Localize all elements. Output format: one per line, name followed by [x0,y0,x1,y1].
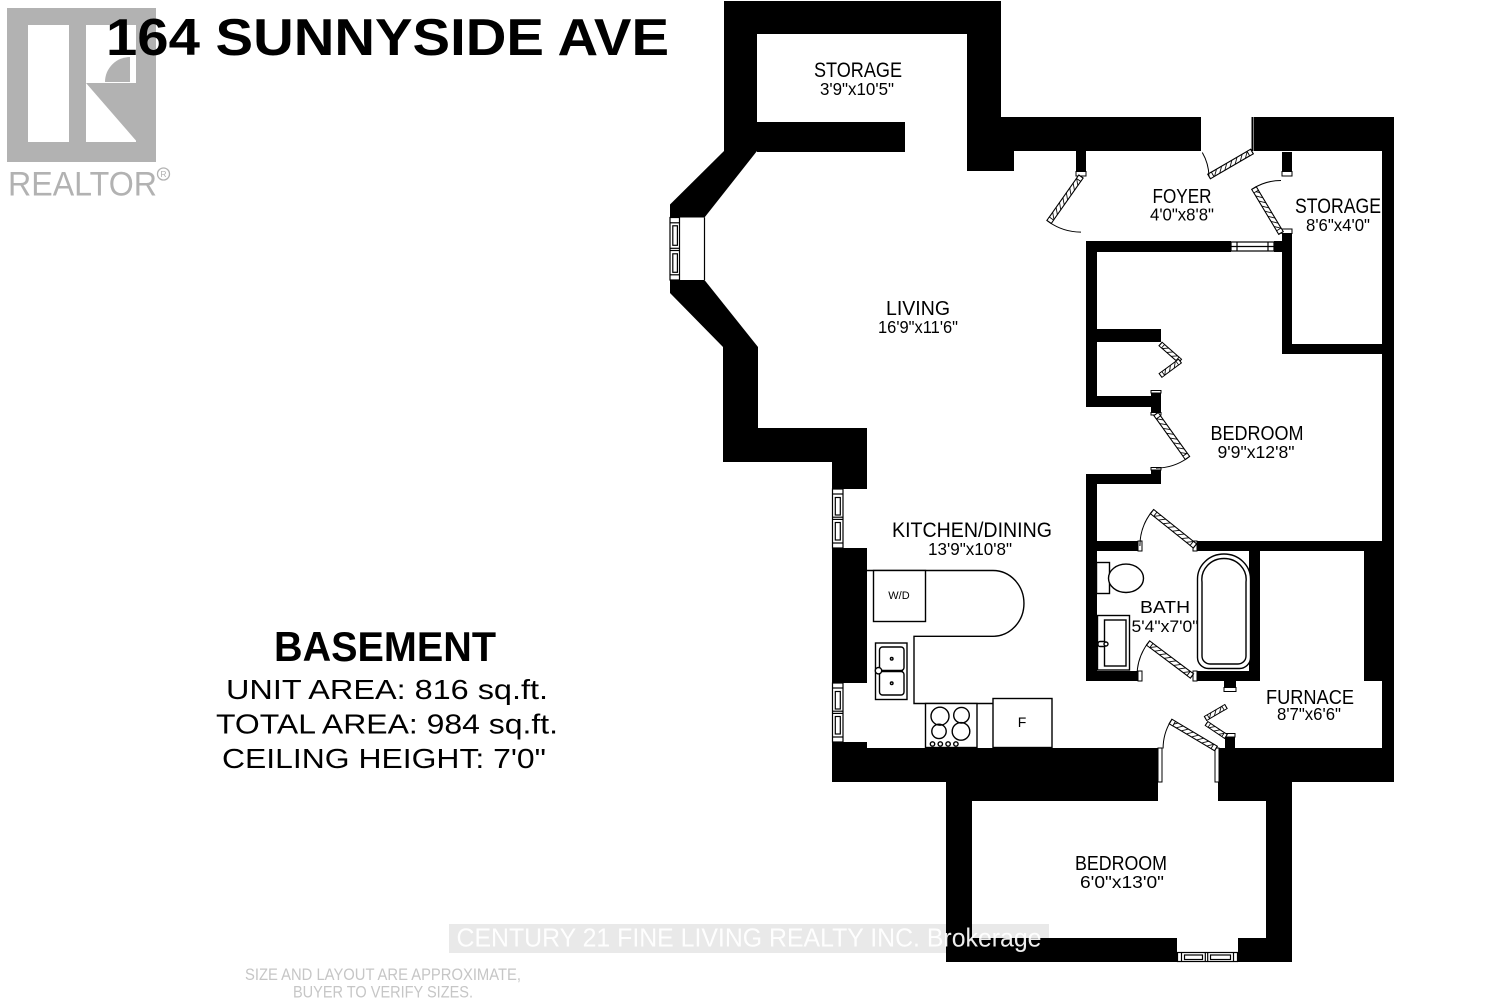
svg-text:9'9"x12'8": 9'9"x12'8" [1218,442,1295,462]
svg-text:8'6"x4'0": 8'6"x4'0" [1306,215,1370,235]
svg-text:3'9"x10'5": 3'9"x10'5" [820,79,894,99]
svg-text:R: R [160,169,166,179]
svg-text:F: F [1018,714,1027,730]
svg-text:16'9"x11'6": 16'9"x11'6" [878,317,958,337]
svg-text:CEILING HEIGHT: 7'0": CEILING HEIGHT: 7'0" [222,743,546,774]
svg-text:8'7"x6'6": 8'7"x6'6" [1277,704,1341,724]
svg-text:BASEMENT: BASEMENT [274,623,496,670]
svg-text:TOTAL AREA: 984 sq.ft.: TOTAL AREA: 984 sq.ft. [216,709,558,740]
svg-text:REALTOR: REALTOR [8,166,157,204]
svg-text:13'9"x10'8": 13'9"x10'8" [928,539,1012,559]
svg-text:SIZE AND LAYOUT ARE APPROXIMAT: SIZE AND LAYOUT ARE APPROXIMATE, [245,965,521,984]
svg-text:W/D: W/D [888,590,909,602]
svg-text:164 SUNNYSIDE AVE: 164 SUNNYSIDE AVE [106,9,669,67]
svg-text:BATH: BATH [1140,597,1190,617]
svg-text:UNIT AREA: 816 sq.ft.: UNIT AREA: 816 sq.ft. [226,674,548,705]
svg-text:BUYER TO VERIFY SIZES.: BUYER TO VERIFY SIZES. [293,983,473,1000]
svg-text:5'4"x7'0": 5'4"x7'0" [1132,618,1199,636]
svg-text:4'0"x8'8": 4'0"x8'8" [1150,205,1214,225]
svg-text:6'0"x13'0": 6'0"x13'0" [1080,872,1164,892]
svg-text:CENTURY 21 FINE LIVING REALTY: CENTURY 21 FINE LIVING REALTY INC. Broke… [457,923,1042,953]
